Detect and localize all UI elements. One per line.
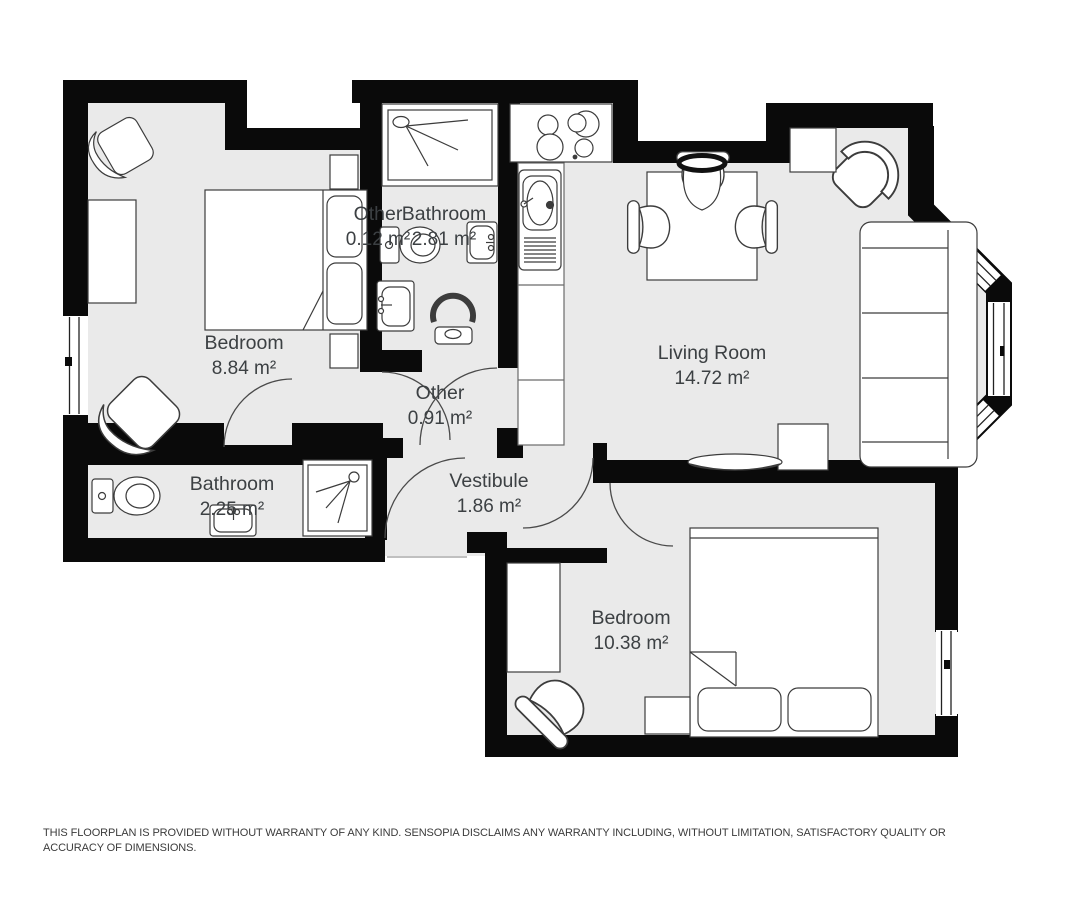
nightstand-icon — [330, 155, 358, 189]
room-label-other-2: Other 0.91 m² — [408, 381, 472, 431]
disclaimer-text: THIS FLOORPLAN IS PROVIDED WITHOUT WARRA… — [43, 826, 991, 856]
double-bed-icon — [690, 528, 878, 737]
room-label-vestibule: Vestibule 1.86 m² — [449, 469, 528, 519]
toilet-icon — [92, 477, 160, 515]
room-label-bathroom-2: Bathroom 2.25 m² — [190, 472, 275, 522]
nightstand-icon — [330, 334, 358, 368]
sink-icon — [377, 281, 414, 331]
room-label-bedroom-2: Bedroom 10.38 m² — [591, 606, 670, 656]
window-icon — [63, 316, 88, 415]
room-label-living-room: Living Room 14.72 m² — [658, 341, 766, 391]
floorplan-page: Bedroom 8.84 m² Other 0.12 m² Bathroom 2… — [0, 0, 1077, 900]
nightstand-icon — [645, 697, 690, 734]
side-table-icon — [778, 424, 828, 470]
stove-icon — [510, 104, 612, 162]
dresser-icon — [88, 200, 136, 303]
shower-icon — [382, 104, 498, 186]
wardrobe-icon — [507, 563, 560, 672]
double-bed-icon — [205, 190, 367, 330]
floorplan-canvas — [0, 0, 1077, 900]
room-label-bathroom-1: Bathroom 2.81 m² — [402, 202, 487, 252]
wall-shelf-icon — [688, 454, 782, 470]
kitchen-sink-icon — [519, 170, 561, 270]
room-label-other-1: Other 0.12 m² — [346, 202, 410, 252]
window-icon — [988, 302, 1010, 396]
side-table-icon — [790, 128, 836, 172]
sofa-icon — [860, 222, 977, 467]
shower-icon — [303, 460, 372, 536]
window-icon — [936, 630, 957, 716]
room-label-bedroom-1: Bedroom 8.84 m² — [204, 331, 283, 381]
